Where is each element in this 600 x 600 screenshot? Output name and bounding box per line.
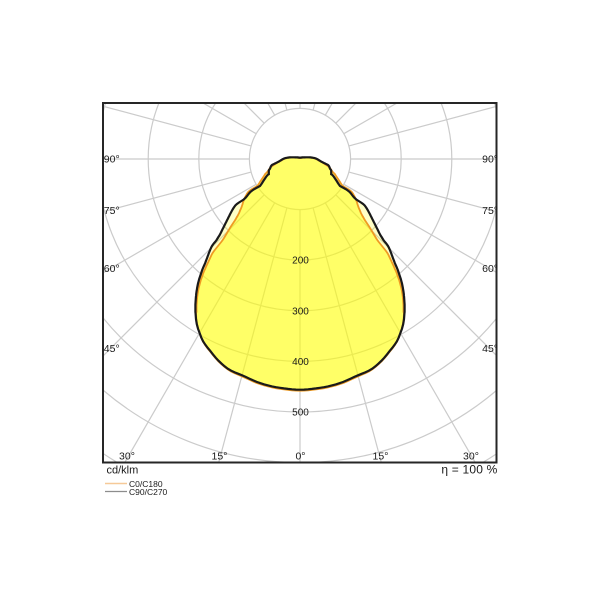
svg-text:500: 500 <box>292 408 309 419</box>
svg-text:15°: 15° <box>212 451 228 463</box>
svg-text:60°: 60° <box>104 263 120 275</box>
svg-text:C90/C270: C90/C270 <box>129 487 168 497</box>
svg-text:400: 400 <box>292 357 309 368</box>
svg-text:60°: 60° <box>482 263 498 275</box>
svg-text:300: 300 <box>292 306 309 317</box>
svg-text:45°: 45° <box>104 343 120 355</box>
svg-text:cd/klm: cd/klm <box>107 465 139 477</box>
svg-text:0°: 0° <box>295 451 305 463</box>
svg-text:75°: 75° <box>104 205 120 217</box>
svg-text:15°: 15° <box>373 451 389 463</box>
svg-text:30°: 30° <box>119 451 135 463</box>
svg-text:90°: 90° <box>482 153 498 165</box>
svg-text:30°: 30° <box>463 451 479 463</box>
svg-text:45°: 45° <box>482 343 498 355</box>
svg-text:200: 200 <box>292 256 309 267</box>
svg-text:η = 100 %: η = 100 % <box>441 463 497 477</box>
svg-text:90°: 90° <box>104 153 120 165</box>
svg-text:75°: 75° <box>482 205 498 217</box>
